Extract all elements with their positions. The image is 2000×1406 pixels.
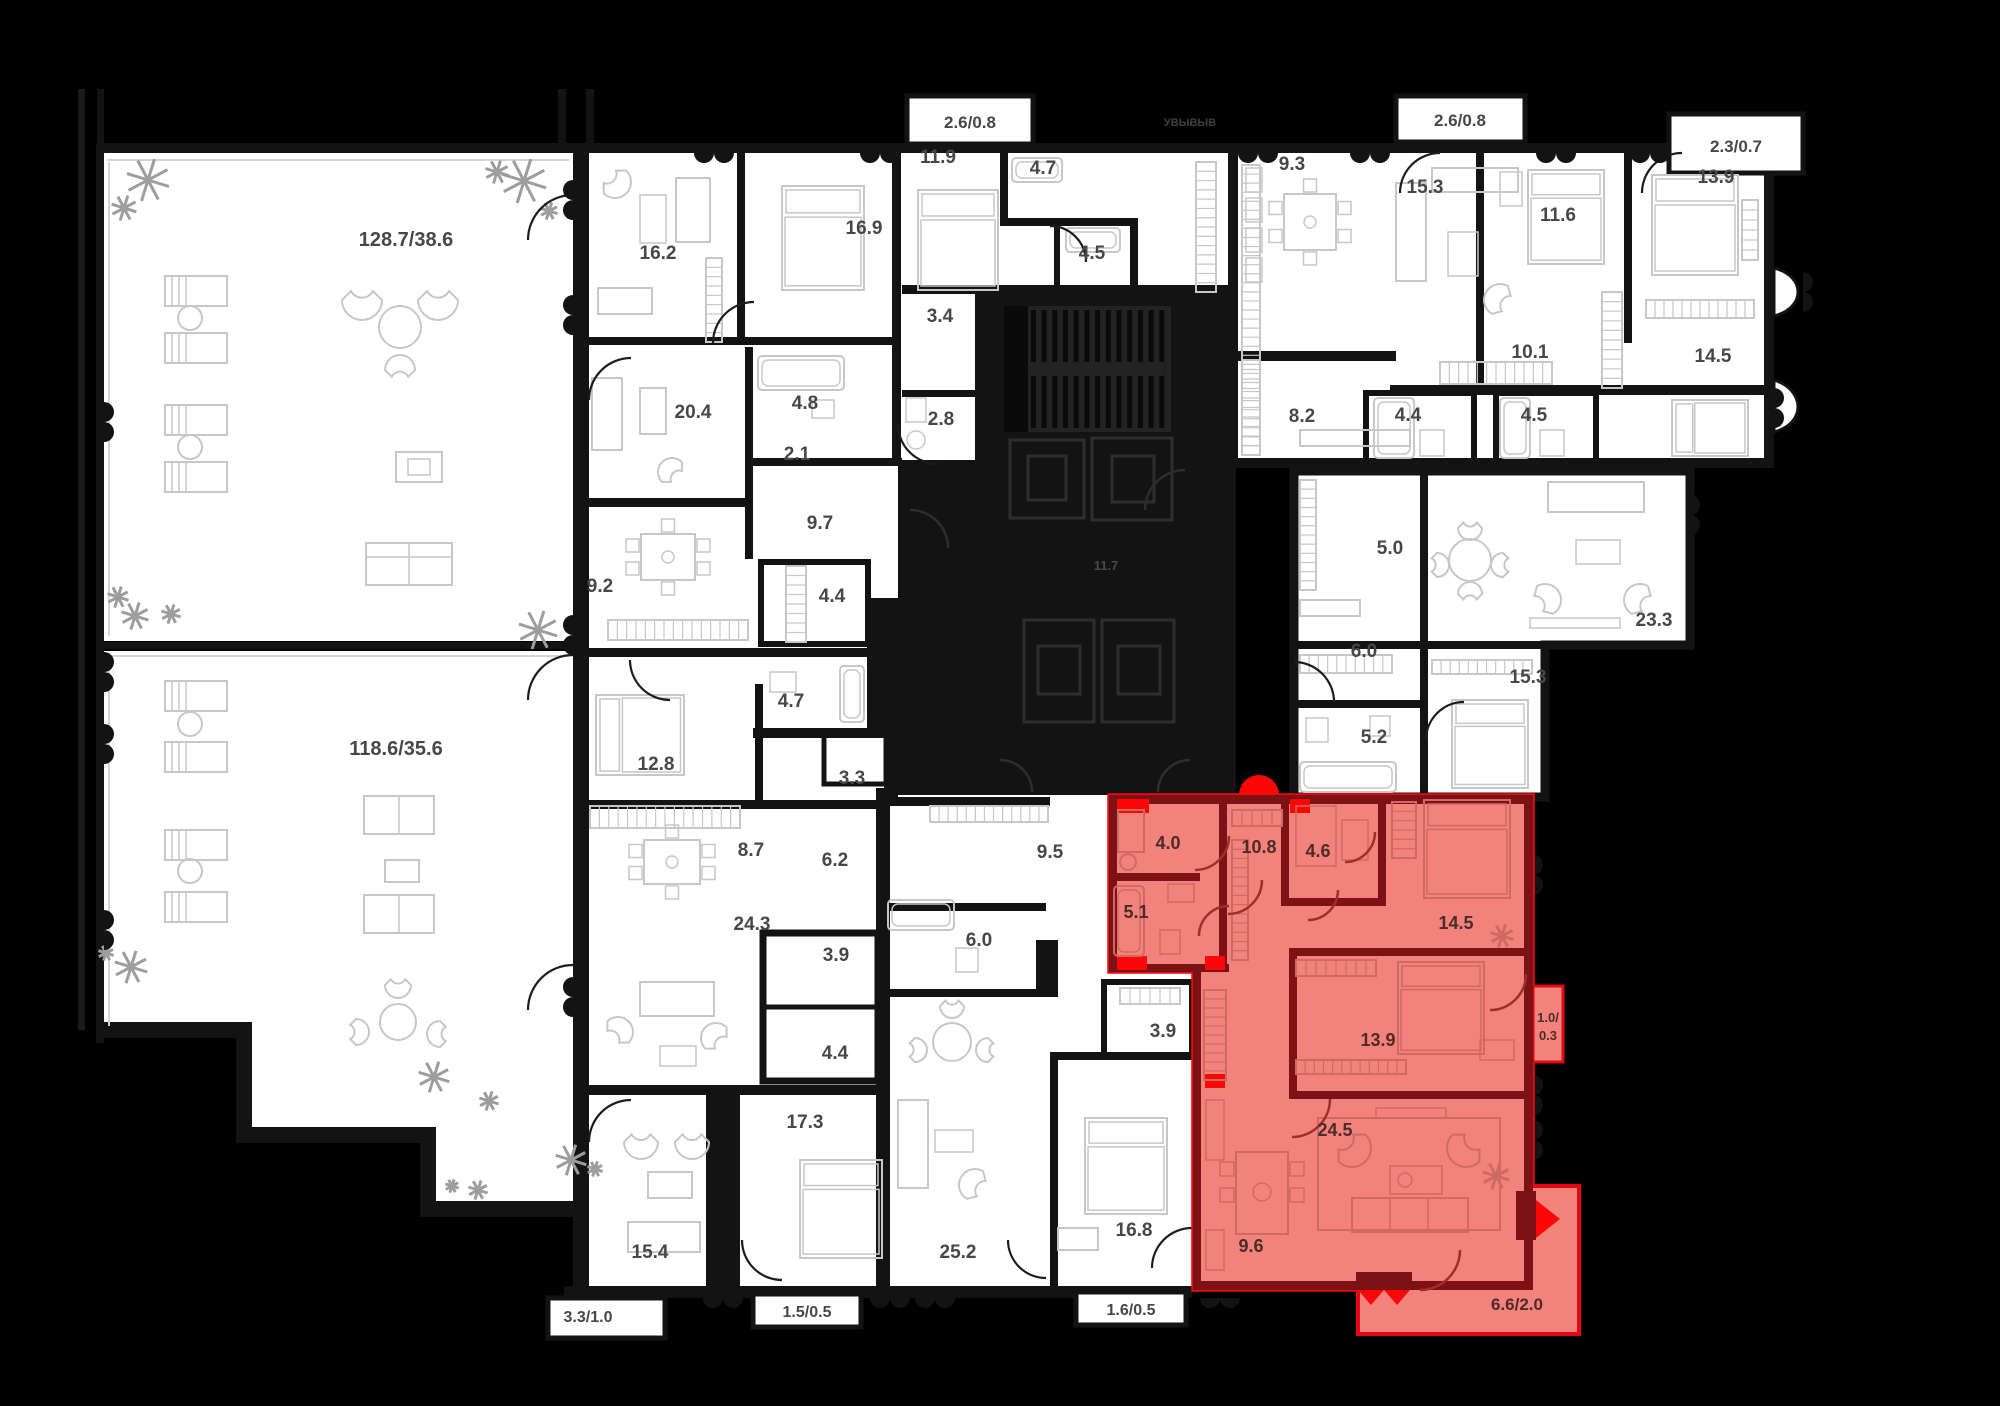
svg-text:24.5: 24.5: [1317, 1120, 1352, 1140]
svg-text:9.6: 9.6: [1238, 1236, 1263, 1256]
svg-text:4.5: 4.5: [1521, 405, 1548, 426]
svg-text:1.5/0.5: 1.5/0.5: [783, 1304, 832, 1321]
svg-text:11.6: 11.6: [1540, 205, 1576, 226]
svg-text:4.0: 4.0: [1155, 833, 1180, 853]
svg-text:6.0: 6.0: [1351, 641, 1377, 662]
svg-text:9.2: 9.2: [587, 576, 613, 597]
svg-text:16.8: 16.8: [1116, 1220, 1153, 1241]
svg-text:2.6/0.8: 2.6/0.8: [944, 113, 996, 132]
svg-text:128.7/38.6: 128.7/38.6: [359, 229, 454, 251]
svg-text:3.9: 3.9: [823, 945, 849, 966]
svg-text:6.2: 6.2: [822, 850, 848, 871]
svg-text:20.4: 20.4: [675, 402, 712, 423]
svg-text:2.1: 2.1: [784, 444, 811, 465]
svg-text:9.3: 9.3: [1279, 154, 1305, 175]
svg-text:5.1: 5.1: [1123, 902, 1148, 922]
svg-text:4.4: 4.4: [1395, 405, 1422, 426]
svg-text:15.3: 15.3: [1510, 667, 1547, 688]
svg-text:12.8: 12.8: [638, 754, 675, 775]
svg-text:5.2: 5.2: [1361, 727, 1387, 748]
svg-text:4.4: 4.4: [819, 586, 846, 607]
svg-text:4.4: 4.4: [822, 1043, 849, 1064]
svg-text:1.6/0.5: 1.6/0.5: [1107, 1302, 1156, 1319]
svg-text:3.3/1.0: 3.3/1.0: [564, 1309, 613, 1326]
svg-text:23.3: 23.3: [1636, 610, 1673, 631]
svg-text:15.4: 15.4: [632, 1242, 669, 1263]
svg-text:3.3: 3.3: [839, 768, 865, 789]
svg-text:15.3: 15.3: [1407, 177, 1444, 198]
svg-text:16.2: 16.2: [640, 243, 677, 264]
svg-text:10.1: 10.1: [1512, 342, 1549, 363]
svg-text:4.6: 4.6: [1305, 841, 1330, 861]
svg-text:9.5: 9.5: [1037, 842, 1064, 863]
svg-text:3.4: 3.4: [927, 306, 954, 327]
svg-text:14.5: 14.5: [1438, 913, 1473, 933]
svg-text:11.9: 11.9: [920, 147, 956, 168]
svg-text:3.9: 3.9: [1150, 1021, 1176, 1042]
svg-text:10.8: 10.8: [1241, 837, 1276, 857]
svg-text:13.9: 13.9: [1360, 1030, 1395, 1050]
svg-text:4.7: 4.7: [1030, 158, 1056, 179]
svg-text:9.7: 9.7: [807, 513, 833, 534]
svg-text:24.3: 24.3: [734, 914, 771, 935]
svg-text:УВЫВЫВ: УВЫВЫВ: [1164, 117, 1216, 129]
svg-text:11.7: 11.7: [1094, 558, 1119, 573]
svg-text:1.0/: 1.0/: [1537, 1010, 1559, 1025]
svg-text:4.5: 4.5: [1079, 243, 1106, 264]
svg-text:5.0: 5.0: [1377, 538, 1403, 559]
svg-text:14.5: 14.5: [1695, 346, 1732, 367]
svg-text:0.3: 0.3: [1539, 1028, 1557, 1043]
svg-text:2.8: 2.8: [928, 409, 954, 430]
svg-text:4.7: 4.7: [778, 691, 804, 712]
svg-text:16.9: 16.9: [846, 218, 883, 239]
svg-text:13.9: 13.9: [1698, 167, 1735, 188]
svg-text:8.2: 8.2: [1289, 406, 1315, 427]
svg-text:6.0: 6.0: [966, 930, 992, 951]
svg-text:2.3/0.7: 2.3/0.7: [1710, 137, 1762, 156]
svg-text:118.6/35.6: 118.6/35.6: [349, 738, 442, 760]
svg-text:25.2: 25.2: [940, 1242, 977, 1263]
svg-text:8.7: 8.7: [738, 840, 764, 861]
svg-text:6.6/2.0: 6.6/2.0: [1491, 1295, 1543, 1314]
svg-text:2.6/0.8: 2.6/0.8: [1434, 111, 1486, 130]
svg-text:4.8: 4.8: [792, 393, 818, 414]
svg-text:17.3: 17.3: [787, 1112, 824, 1133]
